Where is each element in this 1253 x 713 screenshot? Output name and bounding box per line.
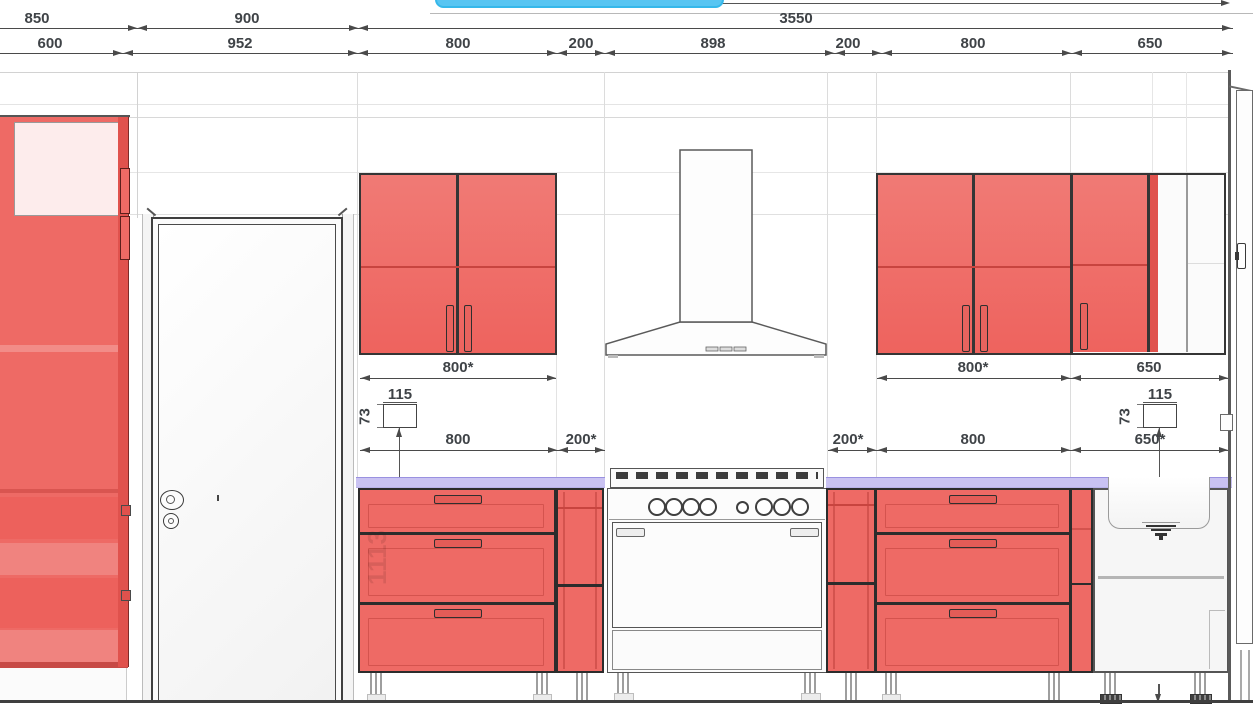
measurement-tooltip[interactable] — [435, 0, 724, 8]
dim-arrow — [547, 375, 556, 381]
dim-arrow — [361, 375, 370, 381]
dimension-line — [718, 3, 1223, 4]
dim-label: 650 — [1119, 359, 1179, 376]
dim-arrow — [878, 375, 887, 381]
elevation-canvas: 850 900 3550 600 952 800 200 898 200 800… — [0, 0, 1253, 713]
drawer-panel — [885, 548, 1059, 596]
oven-handle — [790, 528, 819, 537]
filler-line — [558, 507, 602, 509]
range-knob[interactable] — [791, 498, 809, 516]
dim-arrow — [349, 25, 358, 31]
corner-shelf-line — [1188, 263, 1224, 264]
dimension-line — [360, 378, 556, 379]
cabinet-door-handle — [962, 305, 970, 352]
socket-width-label: 115 — [1135, 386, 1185, 403]
panel-line — [1072, 528, 1091, 530]
door-keyhole-dot — [168, 518, 174, 524]
cooker-hood[interactable] — [600, 148, 832, 360]
storage-drawer[interactable] — [612, 630, 822, 670]
dimension-line — [430, 13, 1253, 14]
filler-line — [595, 492, 597, 669]
dim-label: 800 — [948, 35, 998, 52]
gridline-v — [137, 72, 138, 218]
gridline-h — [0, 104, 1229, 105]
dim-label: 650 — [1125, 35, 1175, 52]
socket-dim-line — [1143, 402, 1177, 403]
range-knob[interactable] — [773, 498, 791, 516]
sink-cabinet-rail — [1098, 576, 1224, 579]
drain-symbol — [1146, 525, 1176, 527]
product-code-watermark: 1113 — [362, 551, 408, 585]
dim-label: 200* — [553, 431, 609, 448]
dim-arrow — [124, 50, 133, 56]
socket-height-label: 73 — [357, 404, 374, 430]
dim-label: 800 — [433, 431, 483, 448]
cabinet-shelf-line — [878, 266, 1070, 268]
dimension-line — [0, 28, 1233, 29]
socket-outlet[interactable] — [1143, 404, 1177, 428]
cabinet-leg — [845, 673, 857, 700]
dim-arrow — [113, 50, 122, 56]
dimension-line — [828, 450, 1228, 451]
dim-label: 200* — [820, 431, 876, 448]
tall-cabinet-handle — [120, 216, 130, 260]
range-knob[interactable] — [682, 498, 700, 516]
socket-outlet[interactable] — [383, 404, 417, 428]
gridline-h — [0, 117, 1229, 118]
dim-arrow — [883, 50, 892, 56]
dim-arrow — [606, 50, 615, 56]
dim-arrow — [1061, 375, 1070, 381]
dim-arrow — [1219, 375, 1228, 381]
range-knob[interactable] — [755, 498, 773, 516]
tall-cabinet-handle — [121, 505, 131, 516]
dimension-line — [0, 53, 1233, 54]
drawer-panel — [885, 618, 1059, 666]
dim-label: 800 — [948, 431, 998, 448]
dim-arrow — [1061, 447, 1070, 453]
cabinet-shelf-line — [361, 266, 555, 268]
wall-cabinet-right[interactable] — [876, 173, 1072, 355]
filler-line — [828, 504, 874, 506]
drawer-divider — [877, 602, 1069, 605]
range-knob[interactable] — [648, 498, 666, 516]
dim-arrow — [359, 50, 368, 56]
tall-cabinet-glass-door[interactable] — [14, 122, 120, 216]
socket-height-label: 73 — [1117, 404, 1134, 430]
tall-cabinet-handle — [120, 168, 130, 214]
dim-label: 650* — [1122, 431, 1178, 448]
range-cooker[interactable] — [607, 466, 827, 703]
filler-line — [867, 492, 869, 669]
drawer-divider — [360, 602, 554, 605]
dim-label: 200 — [556, 35, 606, 52]
wall-cabinet-corner[interactable] — [1071, 173, 1226, 355]
socket-leader-arrow — [396, 428, 402, 437]
gridline-h — [0, 72, 1229, 73]
dim-arrow — [1073, 50, 1082, 56]
filler-line — [563, 492, 565, 669]
base-cabinet-right[interactable] — [875, 488, 1071, 673]
door-leaf[interactable] — [158, 224, 336, 703]
dim-label: 200 — [823, 35, 873, 52]
drawer-handle — [434, 495, 482, 504]
open-door-handle-notch — [1235, 252, 1239, 260]
tall-cabinet-divider — [0, 489, 128, 493]
sink-cabinet-notch — [1209, 610, 1225, 669]
tall-cabinet-plinth — [0, 668, 127, 702]
wall-cabinet-left[interactable] — [359, 173, 557, 355]
tall-cabinet-shelf-line — [0, 345, 122, 352]
dim-label: 952 — [215, 35, 265, 52]
dim-arrow — [1219, 447, 1228, 453]
tall-cabinet-drawer[interactable] — [0, 543, 125, 575]
tall-cabinet-drawer[interactable] — [0, 497, 125, 539]
drain-symbol — [1151, 529, 1171, 531]
drawer-panel — [368, 504, 544, 528]
base-filler-left[interactable] — [556, 488, 604, 673]
cabinet-shelf-line — [1073, 264, 1147, 266]
dim-label: 850 — [12, 10, 62, 27]
base-cabinet-left[interactable]: 1113 — [358, 488, 556, 673]
base-side-panel — [1070, 488, 1093, 673]
tall-cabinet-drawer[interactable] — [0, 630, 125, 662]
base-filler-right[interactable] — [826, 488, 876, 673]
range-knob[interactable] — [665, 498, 683, 516]
wall-corner-line — [1228, 70, 1231, 703]
drain-symbol — [1142, 522, 1180, 523]
dim-arrow — [1221, 0, 1230, 6]
door-handle-rose — [166, 495, 175, 504]
drain-symbol — [1159, 536, 1163, 540]
cooktop-grates — [616, 472, 818, 479]
range-knob[interactable] — [699, 498, 717, 516]
sink-leg — [1104, 673, 1116, 695]
door-latch-mark — [217, 495, 219, 501]
dim-arrow — [1062, 50, 1071, 56]
drawer-handle — [949, 495, 997, 504]
cabinet-door-handle — [980, 305, 988, 352]
dim-arrow — [359, 25, 368, 31]
door-casing-right — [342, 214, 354, 703]
floor-line — [0, 700, 1253, 703]
dim-arrow — [1072, 375, 1081, 381]
panel-line — [1072, 583, 1091, 585]
filler-divider — [558, 584, 602, 587]
cabinet-leg — [1048, 673, 1060, 700]
sink-leg — [1194, 673, 1206, 695]
dim-arrow — [872, 50, 881, 56]
cabinet-door-handle — [1080, 303, 1088, 350]
corner-cabinet-side — [1150, 175, 1158, 352]
dim-arrow — [138, 25, 147, 31]
filler-divider — [828, 582, 874, 585]
dim-arrow — [547, 50, 556, 56]
drawer-panel — [885, 504, 1059, 528]
drawer-handle — [434, 609, 482, 618]
cabinet-door-handle — [446, 305, 454, 352]
dim-arrow — [348, 50, 357, 56]
cabinet-door-divider — [456, 175, 459, 353]
dim-arrow — [1222, 25, 1231, 31]
socket-dim-line — [383, 402, 417, 403]
tall-cabinet-drawer[interactable] — [0, 578, 125, 628]
dim-label: 3550 — [766, 10, 826, 27]
dim-arrow — [878, 447, 887, 453]
open-door-leg-line — [1240, 650, 1242, 701]
dim-arrow — [1222, 50, 1231, 56]
cabinet-door-handle — [464, 305, 472, 352]
socket-width-label: 115 — [375, 386, 425, 403]
filler-line — [833, 492, 835, 669]
cabinet-door-divider — [972, 175, 975, 353]
drawer-handle — [949, 609, 997, 618]
dim-arrow — [361, 447, 370, 453]
dim-label: 900 — [222, 10, 272, 27]
dim-label: 800 — [433, 35, 483, 52]
open-door-leg-line — [1248, 650, 1250, 701]
dimension-line — [877, 378, 1228, 379]
drawer-handle — [434, 539, 482, 548]
dim-label: 800* — [428, 359, 488, 376]
cabinet-leg — [576, 673, 588, 700]
drawer-panel — [368, 618, 544, 666]
drawer-handle — [949, 539, 997, 548]
open-door-hinge-block — [1220, 414, 1233, 431]
dim-label: 600 — [25, 35, 75, 52]
open-door-profile[interactable] — [1236, 90, 1253, 644]
dim-label: 800* — [943, 359, 1003, 376]
oven-door[interactable] — [612, 522, 822, 628]
drawer-divider — [877, 532, 1069, 535]
panel-line — [609, 519, 825, 520]
dim-arrow — [128, 25, 137, 31]
oven-handle — [616, 528, 645, 537]
range-knob-small[interactable] — [736, 501, 749, 514]
countertop-left[interactable] — [356, 477, 605, 488]
dim-arrow — [1072, 447, 1081, 453]
dim-label: 898 — [688, 35, 738, 52]
tall-cabinet-handle — [121, 590, 131, 601]
dimension-line — [360, 450, 605, 451]
